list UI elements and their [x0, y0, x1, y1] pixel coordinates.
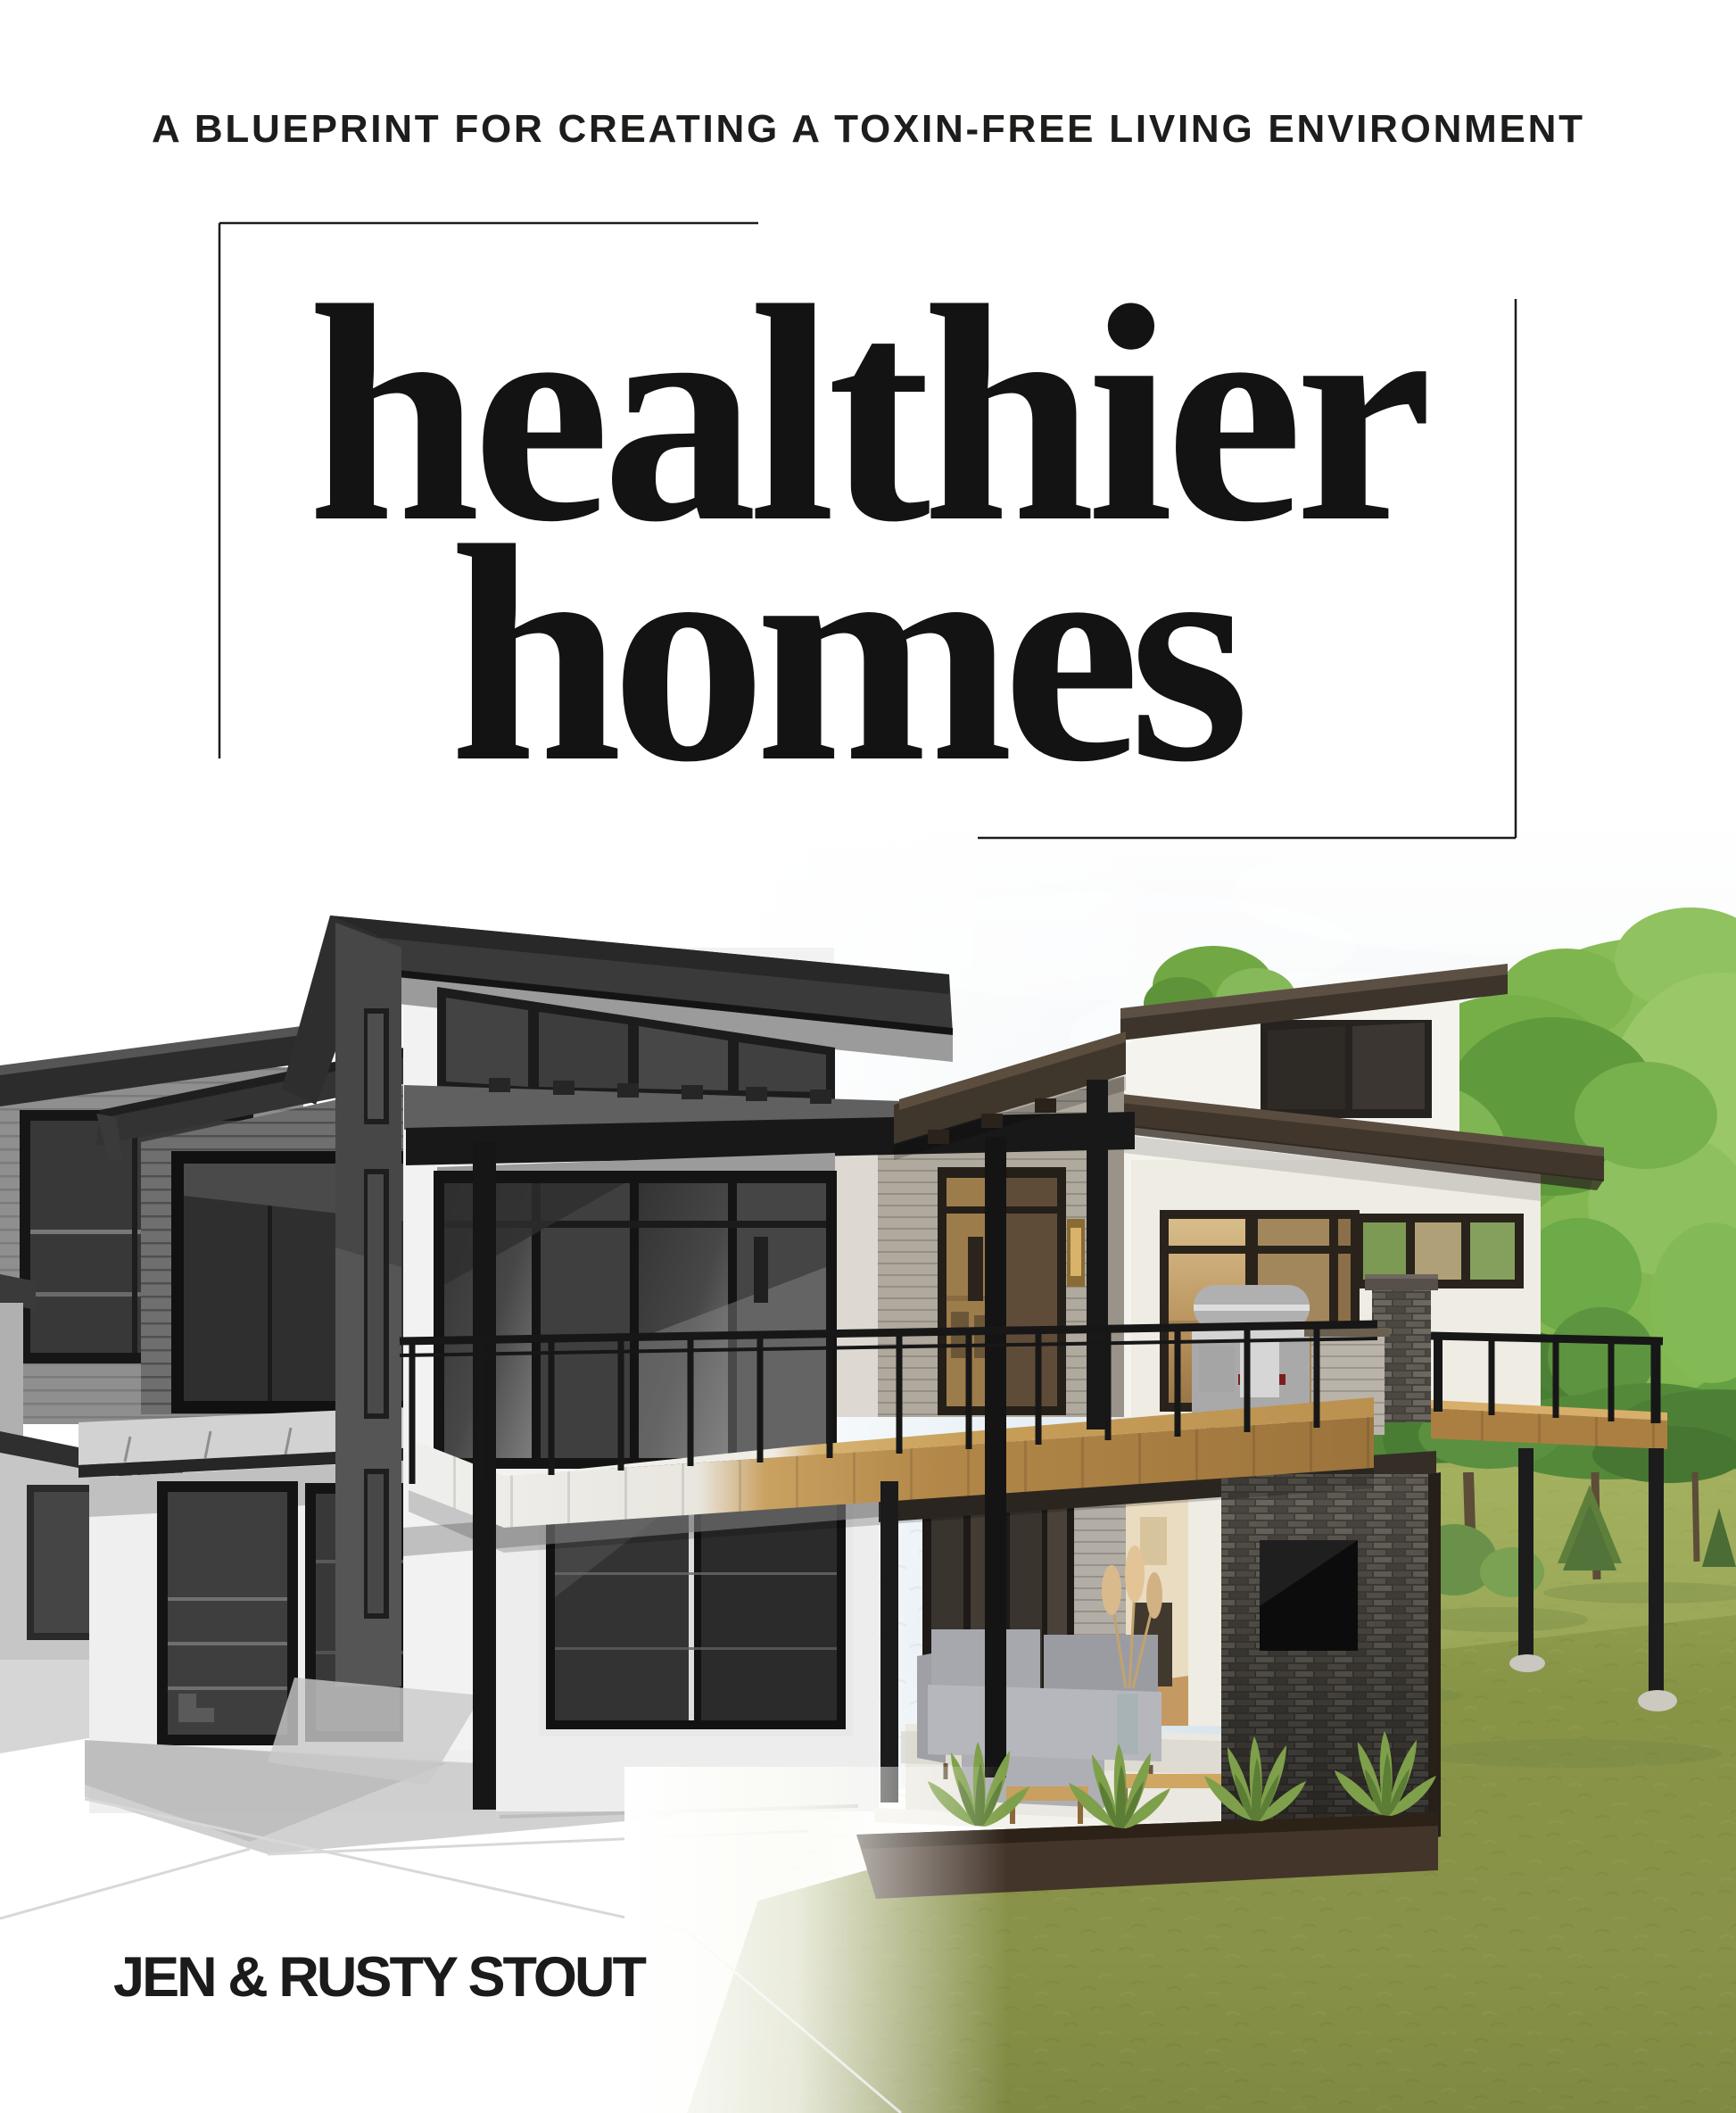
svg-text:JEN & RUSTY STOUT: JEN & RUSTY STOUT: [113, 1946, 647, 2009]
svg-text:homes: homes: [450, 483, 1250, 826]
